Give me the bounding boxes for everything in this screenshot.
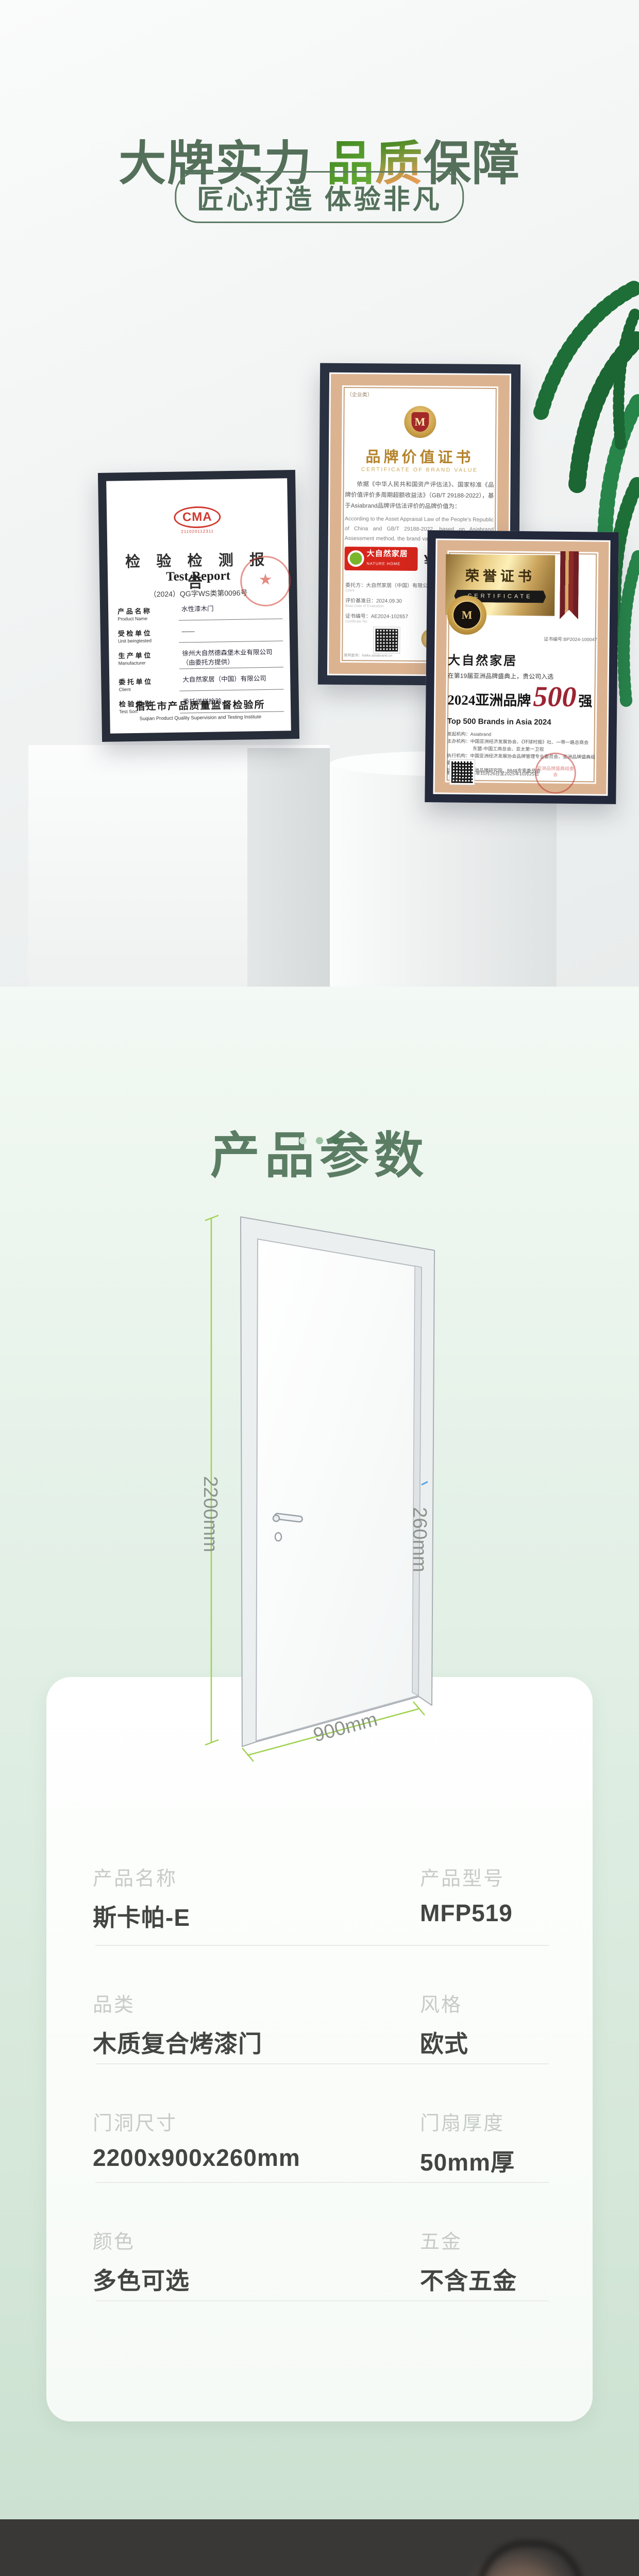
hero-section: 大牌实力 品质保障 匠心打造 体验非凡 [0, 0, 639, 987]
headset-icon [477, 2540, 584, 2576]
honor-cert-no: 证书编号:BP2024-100047 [544, 635, 597, 642]
brand-value-title: 品牌价值证书 [345, 445, 494, 467]
client-sub: Client [345, 589, 433, 593]
field-label-en: Product Name [117, 616, 178, 622]
param-category: 品类木质复合烤漆门 [93, 1989, 263, 2059]
param-leaf-thickness: 门扇厚度50mm厚 [420, 2107, 590, 2178]
date-line: 评价基准日：2024.09.30Base Date of Evaluation [345, 596, 402, 608]
gold-medal-icon: M [404, 406, 436, 438]
field-label-en: Client [119, 686, 179, 692]
red-stamp-icon: 亚洲品牌盛典组委会 [534, 752, 576, 794]
cma-logo: CMA [174, 506, 221, 528]
award-number: 500 [533, 685, 576, 709]
award-suffix: 强 [578, 690, 592, 710]
award-line: 2024亚洲品牌 500 强 [447, 684, 592, 710]
param-value: 多色可选 [93, 2262, 263, 2296]
red-ribbon-icon [560, 551, 579, 619]
param-opening-size: 门洞尺寸2200x900x260mm [93, 2107, 263, 2172]
award-line-en: Top 500 Brands in Asia 2024 [447, 717, 551, 726]
honor-medal-icon: M [447, 595, 487, 635]
param-label: 产品型号 [420, 1862, 590, 1891]
door-dimension-diagram: 2200mm 260mm 900mm [180, 1203, 469, 1770]
door-height-label: 2200mm [199, 1476, 221, 1552]
qr-code-icon [450, 760, 475, 785]
param-value: 2200x900x260mm [93, 2144, 263, 2172]
param-label: 风格 [420, 1989, 590, 2017]
field-client: 委 托 单 位Client 大自然家居（中国）有限公司 [119, 674, 283, 692]
field-label-en: Unit beingtested [118, 638, 179, 644]
award-prefix: 2024亚洲品牌 [447, 688, 531, 709]
param-label: 产品名称 [93, 1862, 263, 1891]
parameters-card: 产品名称斯卡帕-E 产品型号MFP519 品类木质复合烤漆门 风格欧式 门洞尺寸… [46, 1677, 593, 2421]
title-dots [0, 1137, 639, 1147]
certificate-honor: 荣誉证书 CERTIFICATE M 证书编号:BP2024-100047 大自… [425, 530, 619, 804]
pedestal-left [28, 751, 247, 987]
honor-content: 荣誉证书 CERTIFICATE M 证书编号:BP2024-100047 大自… [446, 551, 598, 783]
param-label: 五金 [420, 2226, 590, 2254]
field-label-cn: 受 检 单 位 [118, 628, 179, 638]
brand-value-title-en: CERTIFICATE OF BRAND VALUE [345, 466, 494, 473]
param-hardware: 五金不含五金 [420, 2226, 590, 2296]
nature-home-logo: 大自然家居NATURE HOME [344, 547, 417, 571]
brand-value-paragraph-cn: 依据《中华人民共和国资产评估法》、国家标准《品牌价值评价多周期超额收益法》（GB… [345, 479, 494, 513]
field-label-en: Manufacturer [119, 660, 179, 666]
param-value: 斯卡帕-E [93, 1899, 263, 1933]
field-label-cn: 生 产 单 位 [118, 650, 179, 660]
qr-caption: 官网查询：haike.asiabrand.cn [344, 653, 431, 658]
param-label: 门扇厚度 [420, 2107, 590, 2136]
medal-letter: M [411, 412, 429, 432]
honor-brand: 大自然家居 [448, 650, 517, 668]
red-stamp-icon: ★ [240, 555, 291, 607]
qr-code-icon [374, 627, 399, 653]
field-label-cn: 产 品 名 称 [117, 605, 178, 616]
logo-text-cn: 大自然家居 [367, 549, 408, 558]
param-label: 颜色 [93, 2226, 263, 2254]
product-detail-page: 大牌实力 品质保障 匠心打造 体验非凡 [0, 0, 639, 2576]
logo-text-en: NATURE HOME [366, 561, 400, 566]
date-sub: Base Date of Evaluation [345, 604, 402, 608]
param-value: MFP519 [420, 1899, 590, 1927]
param-label: 门洞尺寸 [93, 2107, 263, 2136]
divider [95, 1945, 549, 1946]
param-value: 木质复合烤漆门 [93, 2025, 263, 2059]
divider [95, 2182, 549, 2183]
param-model: 产品型号MFP519 [420, 1862, 590, 1927]
parameters-section: 产品参数 [0, 987, 639, 2519]
param-value: 欧式 [420, 2025, 590, 2059]
param-color: 颜色多色可选 [93, 2226, 263, 2296]
pedestal-left-side [247, 748, 330, 987]
param-product-name: 产品名称斯卡帕-E [93, 1862, 263, 1933]
door-depth-label: 260mm [409, 1507, 430, 1572]
field-manufacturer: 生 产 单 位Manufacturer 徐州大自然德森堡木业有限公司（由委托方提… [118, 648, 283, 670]
service-section: 金保姆服务 全国1000+实体门店支持 咨询下单 › [0, 2519, 639, 2576]
no-sub: Certificate No. [345, 620, 408, 624]
hero-subtitle: 匠心打造 体验非凡 [175, 171, 464, 223]
param-value: 50mm厚 [420, 2144, 590, 2178]
field-value: —— [179, 625, 283, 642]
param-value: 不含五金 [420, 2262, 590, 2296]
dot-icon [316, 1137, 323, 1144]
divider [95, 2300, 549, 2301]
honor-title: 荣誉证书 [446, 564, 555, 585]
field-label-cn: 委 托 单 位 [119, 676, 179, 687]
field-unit-tested: 受 检 单 位Unit beingtested —— [118, 625, 283, 643]
field-value: 徐州大自然德森堡木业有限公司（由委托方提供） [179, 648, 283, 669]
dot-icon [299, 1137, 307, 1144]
logo-dot-icon [347, 550, 364, 567]
parameters-title: 产品参数 [0, 1115, 639, 1187]
param-label: 品类 [93, 1989, 263, 2017]
category-label: （企业类） [347, 390, 373, 398]
cma-number: 211020112311 [112, 528, 283, 535]
client-line: 委托方：大自然家居（中国）有限公司Client [345, 581, 433, 593]
no-line: 证书编号：AE2024-102657Certificate No. [345, 612, 408, 624]
institute-name: 宿迁市产品质量监督检验所 [115, 697, 285, 713]
honor-intro: 在第19届亚洲品牌盛典上，贵公司入选 [448, 671, 554, 681]
field-value: 大自然家居（中国）有限公司 [179, 674, 283, 691]
test-report-content: CMA 211020112311 检 验 检 测 报 告 Test Report… [111, 483, 285, 728]
dot-icon [332, 1137, 340, 1144]
medal-letter: M [452, 601, 482, 630]
divider [95, 2063, 549, 2064]
certificate-test-report: CMA 211020112311 检 验 检 测 报 告 Test Report… [98, 470, 299, 742]
param-style: 风格欧式 [420, 1989, 590, 2059]
cma-mark: CMA 211020112311 [112, 505, 283, 535]
door-leaf [256, 1239, 422, 1741]
field-product-name: 产 品 名 称Product Name 水性漆木门 [117, 603, 282, 621]
